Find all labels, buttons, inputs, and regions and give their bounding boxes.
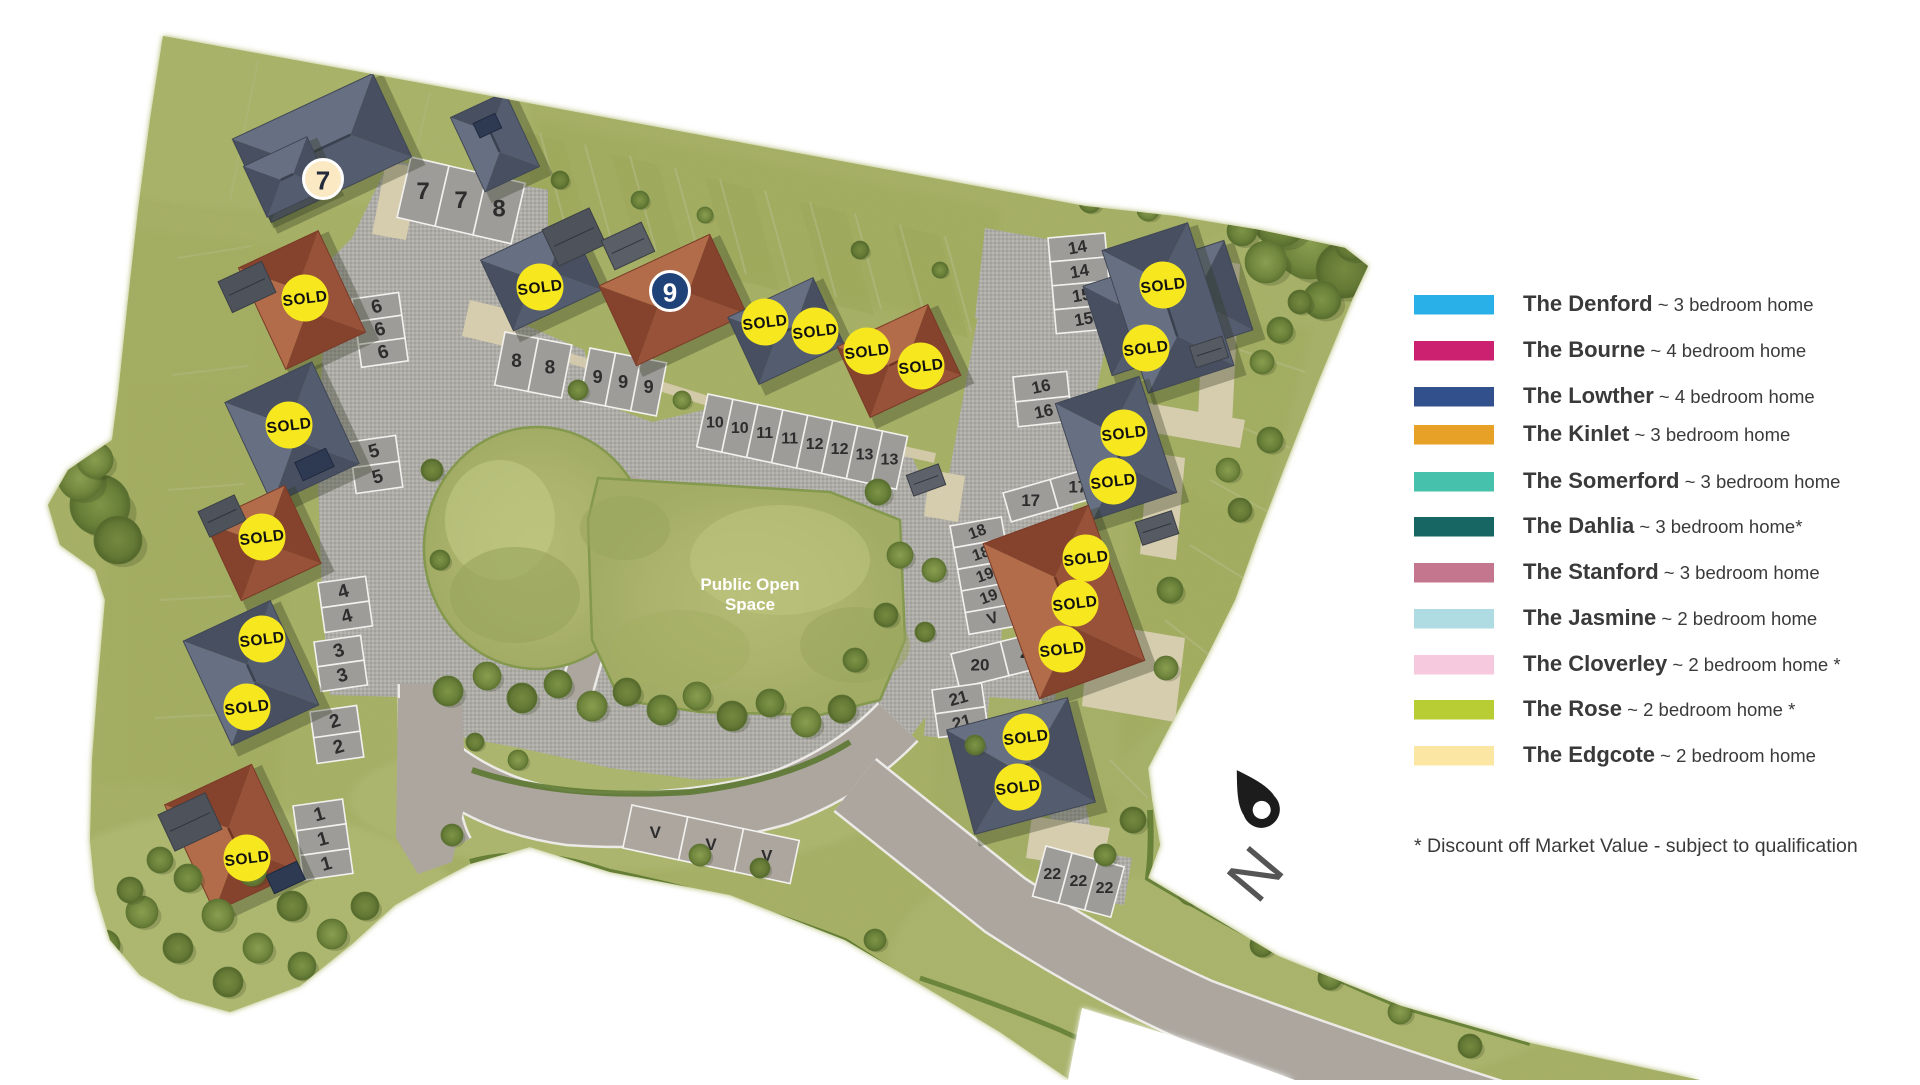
svg-text:The Kinlet ~ 3 bedroom home: The Kinlet ~ 3 bedroom home bbox=[1523, 421, 1790, 446]
svg-text:* Discount off Market Value -: * Discount off Market Value - subject to… bbox=[1414, 835, 1858, 857]
svg-text:7: 7 bbox=[454, 187, 467, 214]
svg-text:14: 14 bbox=[1066, 236, 1088, 258]
svg-text:V: V bbox=[650, 823, 662, 842]
svg-text:The Bourne ~ 4 bedroom home: The Bourne ~ 4 bedroom home bbox=[1523, 337, 1806, 362]
svg-text:14: 14 bbox=[1069, 260, 1091, 282]
svg-text:The Denford ~ 3 bedroom home: The Denford ~ 3 bedroom home bbox=[1523, 291, 1814, 316]
svg-text:11: 11 bbox=[756, 425, 773, 442]
svg-text:12: 12 bbox=[806, 436, 824, 453]
svg-text:16: 16 bbox=[1033, 400, 1055, 423]
svg-text:9: 9 bbox=[644, 377, 654, 397]
svg-text:11: 11 bbox=[781, 430, 798, 447]
svg-text:The Lowther ~ 4 bedroom home: The Lowther ~ 4 bedroom home bbox=[1523, 383, 1815, 408]
svg-text:13: 13 bbox=[856, 446, 874, 463]
svg-text:8: 8 bbox=[545, 358, 556, 379]
svg-text:10: 10 bbox=[731, 420, 749, 437]
svg-text:The Rose ~ 2 bedroom home *: The Rose ~ 2 bedroom home * bbox=[1523, 696, 1795, 721]
svg-text:12: 12 bbox=[831, 441, 849, 458]
svg-text:The Stanford ~ 3 bedroom home: The Stanford ~ 3 bedroom home bbox=[1523, 559, 1820, 584]
svg-text:7: 7 bbox=[416, 178, 429, 205]
svg-text:The Jasmine ~ 2 bedroom home: The Jasmine ~ 2 bedroom home bbox=[1523, 605, 1817, 630]
svg-text:9: 9 bbox=[663, 278, 677, 308]
svg-text:7: 7 bbox=[316, 166, 330, 196]
svg-text:9: 9 bbox=[593, 367, 603, 387]
svg-text:The Dahlia ~ 3 bedroom home*: The Dahlia ~ 3 bedroom home* bbox=[1523, 513, 1802, 538]
svg-text:22: 22 bbox=[1096, 880, 1114, 897]
svg-text:Space: Space bbox=[725, 595, 775, 614]
svg-text:Public Open: Public Open bbox=[700, 575, 799, 594]
svg-text:13: 13 bbox=[881, 452, 899, 469]
svg-text:22: 22 bbox=[1043, 866, 1061, 883]
svg-text:The Edgcote ~ 2 bedroom home: The Edgcote ~ 2 bedroom home bbox=[1523, 742, 1816, 767]
svg-text:17: 17 bbox=[1021, 491, 1040, 510]
svg-text:The Somerford ~ 3 bedroom home: The Somerford ~ 3 bedroom home bbox=[1523, 468, 1840, 493]
svg-text:22: 22 bbox=[1069, 873, 1087, 890]
svg-text:The Cloverley ~ 2 bedroom home: The Cloverley ~ 2 bedroom home * bbox=[1523, 651, 1841, 676]
svg-text:10: 10 bbox=[706, 415, 724, 432]
svg-text:9: 9 bbox=[618, 372, 628, 392]
svg-text:20: 20 bbox=[971, 655, 990, 674]
svg-text:8: 8 bbox=[511, 351, 522, 372]
svg-text:16: 16 bbox=[1030, 375, 1052, 398]
